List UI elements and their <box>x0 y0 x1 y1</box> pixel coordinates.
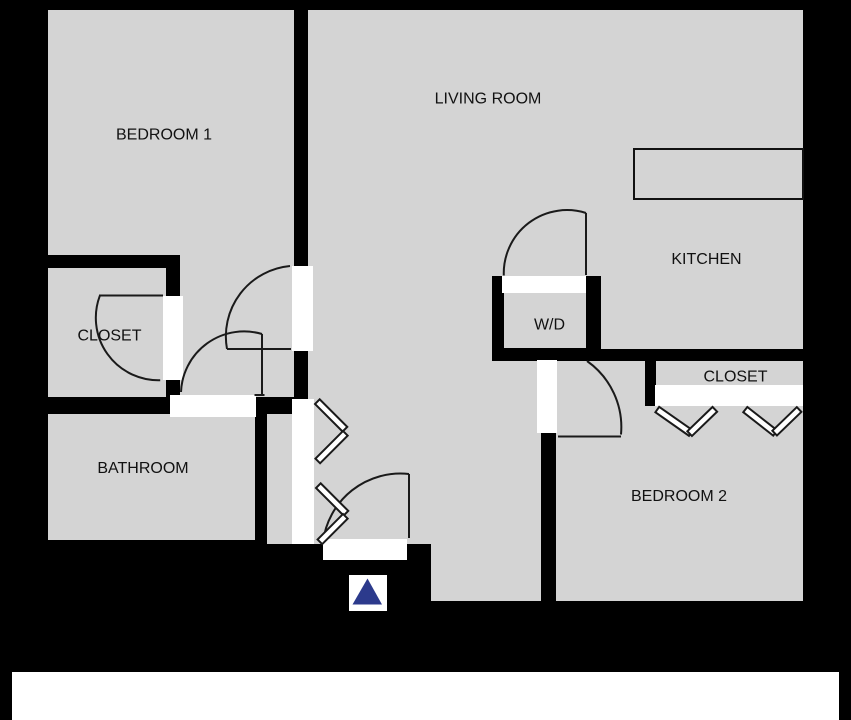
svg-text:BATHROOM: BATHROOM <box>97 460 188 477</box>
svg-text:LIVING ROOM: LIVING ROOM <box>435 91 542 108</box>
svg-text:W/D: W/D <box>534 317 565 334</box>
svg-text:BEDROOM 2: BEDROOM 2 <box>631 488 727 505</box>
svg-text:CLOSET: CLOSET <box>703 369 767 386</box>
svg-text:BEDROOM 1: BEDROOM 1 <box>116 127 212 144</box>
svg-text:KITCHEN: KITCHEN <box>671 251 741 268</box>
svg-text:CLOSET: CLOSET <box>77 328 141 345</box>
